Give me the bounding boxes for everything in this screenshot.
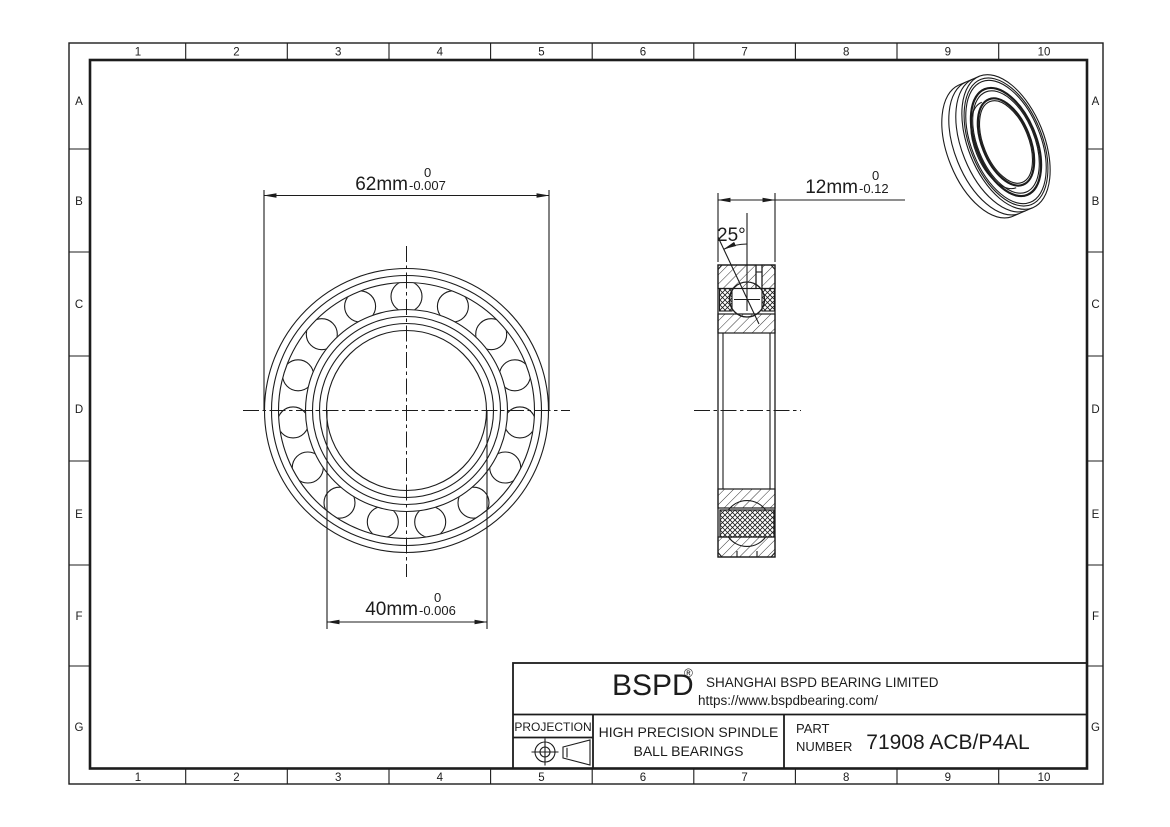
grid-column-dividers [186,43,999,784]
grid-row-label: F [1092,611,1099,623]
grid-col-label: 9 [945,772,951,784]
part-label-line2: NUMBER [796,739,852,754]
company-name: SHANGHAI BSPD BEARING LIMITED [706,675,939,690]
grid-row-label: G [1091,722,1100,734]
dim-od-value: 62mm [355,174,408,195]
grid-col-label: 6 [640,47,646,59]
dim-bore-tol-lower: -0.006 [419,603,456,618]
grid-col-label: 1 [135,772,141,784]
brand-logo-text: BSPD [612,669,694,702]
title-block: BSPD ® SHANGHAI BSPD BEARING LIMITED htt… [513,663,1087,769]
product-name-line1: HIGH PRECISION SPINDLE [599,724,779,740]
grid-col-label: 10 [1038,47,1051,59]
grid-row-label: C [75,299,83,311]
grid-col-label: 5 [538,47,544,59]
grid-row-label: D [1091,404,1099,416]
drawing-canvas: 1 2 3 4 5 6 7 8 9 10 1 2 3 4 5 6 7 8 9 1… [0,0,1170,827]
grid-row-label: A [1092,96,1100,108]
cage-bottom [720,510,774,537]
grid-row-label: F [75,611,82,623]
grid-col-label: 9 [945,47,951,59]
grid-row-label: G [75,722,84,734]
grid-col-label: 7 [741,772,747,784]
outer-ring-bottom [718,537,775,557]
grid-col-label: 4 [437,772,444,784]
grid-col-label: 3 [335,47,341,59]
inner-ring-bottom [718,489,775,508]
registered-mark: ® [684,666,693,680]
outer-ring-top-right [762,265,775,289]
dim-width-tol-lower: -0.12 [859,181,889,196]
grid-col-label: 8 [843,47,849,59]
grid-right-labels: A B C D E F G [1091,96,1100,734]
grid-row-label: E [75,509,83,521]
grid-left-labels: A B C D E F G [75,96,84,734]
dim-width-value: 12mm [805,177,858,198]
iso-face-line [947,66,1064,218]
product-name-line2: BALL BEARINGS [634,743,744,759]
sheet-border: 1 2 3 4 5 6 7 8 9 10 1 2 3 4 5 6 7 8 9 1… [69,43,1103,784]
grid-row-label: B [1092,196,1100,208]
grid-row-label: A [75,96,83,108]
grid-col-label: 1 [135,47,141,59]
grid-col-label: 5 [538,772,544,784]
grid-col-label: 7 [741,47,747,59]
cage-top-right [762,289,775,312]
grid-col-label: 3 [335,772,341,784]
dim-od-tol-lower: -0.007 [409,178,446,193]
grid-row-dividers [69,149,1103,666]
grid-row-label: B [75,196,83,208]
inner-ring-top [718,314,775,333]
dim-bore-value: 40mm [365,599,418,620]
cage-top-left [720,289,733,312]
angle-value: 25° [717,225,746,246]
front-view [243,246,570,577]
part-label-line1: PART [796,721,830,736]
grid-col-label: 8 [843,772,849,784]
grid-col-label: 6 [640,772,646,784]
part-number: 71908 ACB/P4AL [866,731,1029,754]
grid-col-label: 2 [233,772,239,784]
grid-col-label: 4 [437,47,444,59]
iso-bore-edge [967,90,1046,193]
grid-col-label: 10 [1038,772,1051,784]
company-website: https://www.bspdbearing.com/ [698,693,878,708]
grid-col-label: 2 [233,47,239,59]
grid-row-label: E [1092,509,1100,521]
projection-label: PROJECTION [514,720,591,734]
grid-row-label: D [75,404,83,416]
grid-row-label: C [1091,299,1099,311]
first-angle-projection-icon [532,739,591,766]
iso-view [942,62,1068,222]
dimension-width: 12mm 0 -0.12 [718,168,905,262]
drawing-sheet: 1 2 3 4 5 6 7 8 9 10 1 2 3 4 5 6 7 8 9 1… [0,0,1170,827]
